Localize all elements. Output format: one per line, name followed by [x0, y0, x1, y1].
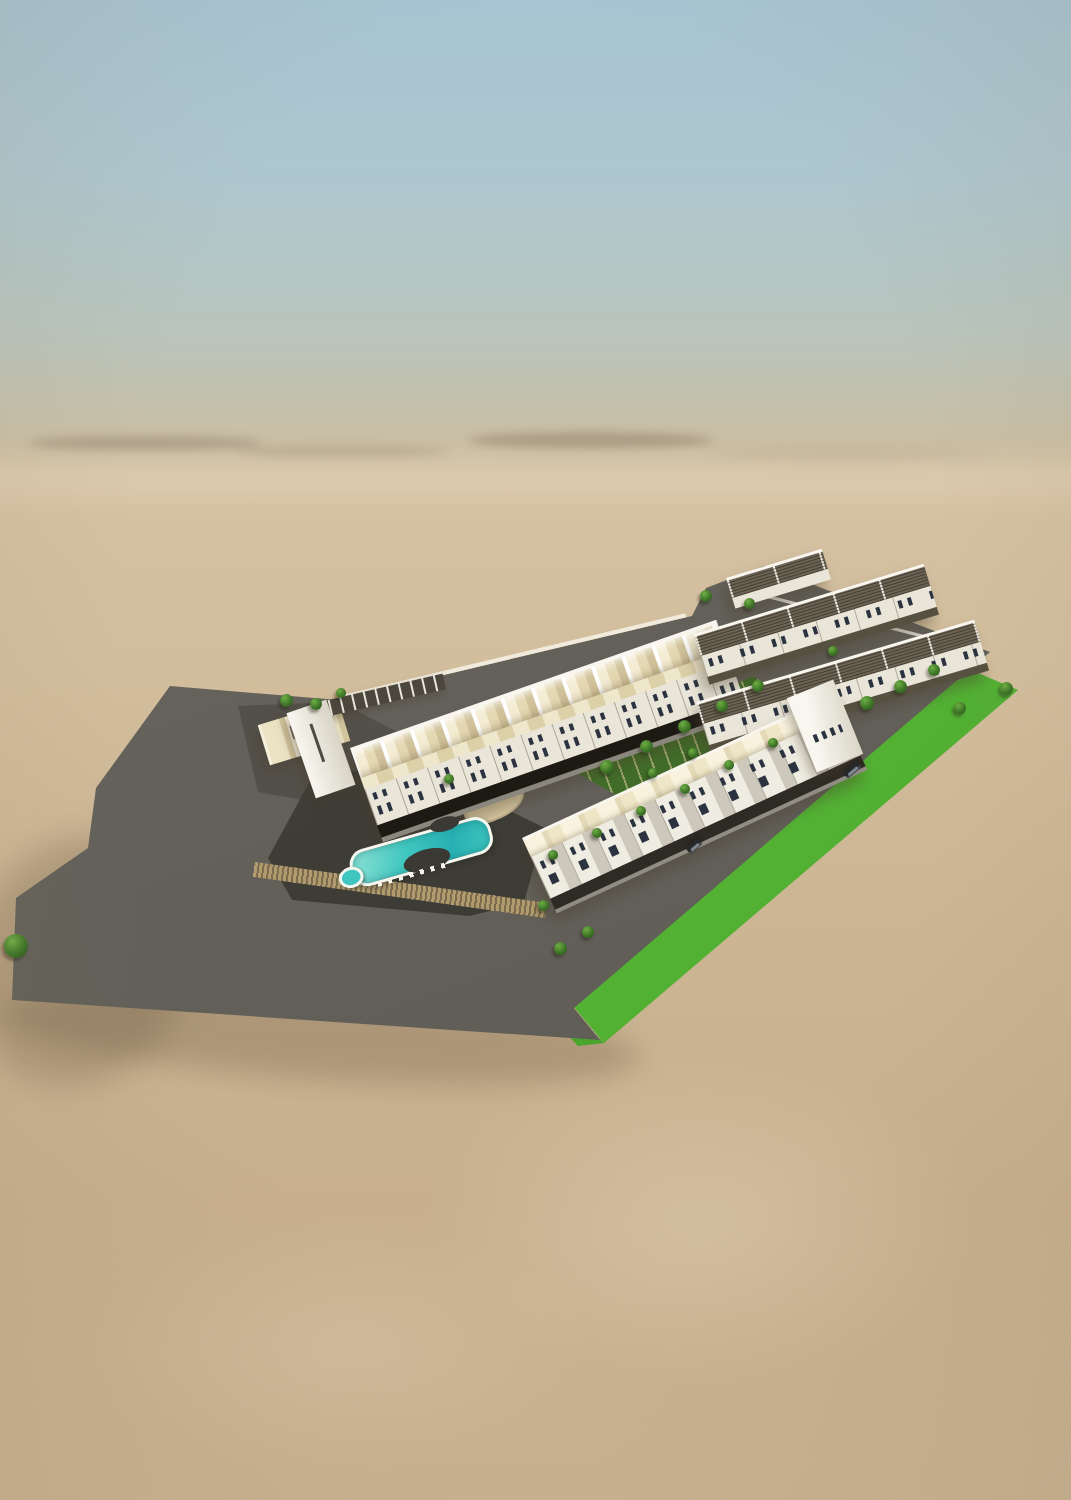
courtyard-tree — [640, 740, 653, 753]
cluster-tree — [700, 590, 712, 602]
lawn-tree — [928, 664, 940, 676]
end-tower-windows — [813, 724, 844, 743]
pergola-roof-band — [11, 898, 12, 911]
roof-slabs — [9, 911, 10, 923]
cluster-tree — [828, 646, 838, 656]
tree — [4, 934, 28, 958]
lawn-tree — [894, 680, 907, 693]
courtyard-tree — [752, 680, 764, 692]
courtyard-tree — [716, 700, 728, 712]
tree — [280, 694, 293, 707]
tree — [336, 688, 346, 698]
horizon-haze-band — [0, 446, 1071, 516]
street-tree — [592, 828, 602, 838]
tree — [538, 900, 549, 911]
street-tree — [548, 850, 558, 860]
street-tree — [680, 784, 690, 794]
street-tree — [768, 738, 778, 748]
sand-light-patch — [80, 1220, 600, 1480]
courtyard-tree — [600, 760, 614, 774]
cluster-tree — [744, 598, 755, 609]
podium-wall — [1, 993, 2, 1005]
cluster-tree — [1000, 682, 1013, 695]
tree — [310, 698, 322, 710]
courtyard-tree — [648, 768, 658, 778]
street-tree — [636, 806, 646, 816]
courtyard-tree — [678, 720, 691, 733]
large-window-band — [5, 955, 6, 966]
lawn-tree — [860, 696, 874, 710]
desert-compound-render — [0, 0, 1071, 1500]
tree — [554, 942, 567, 955]
courtyard-tree — [688, 748, 698, 758]
street-tree — [724, 760, 734, 770]
wall-slit — [309, 723, 325, 762]
lawn-tree — [954, 702, 966, 714]
tree — [582, 926, 594, 938]
tree — [444, 774, 454, 784]
